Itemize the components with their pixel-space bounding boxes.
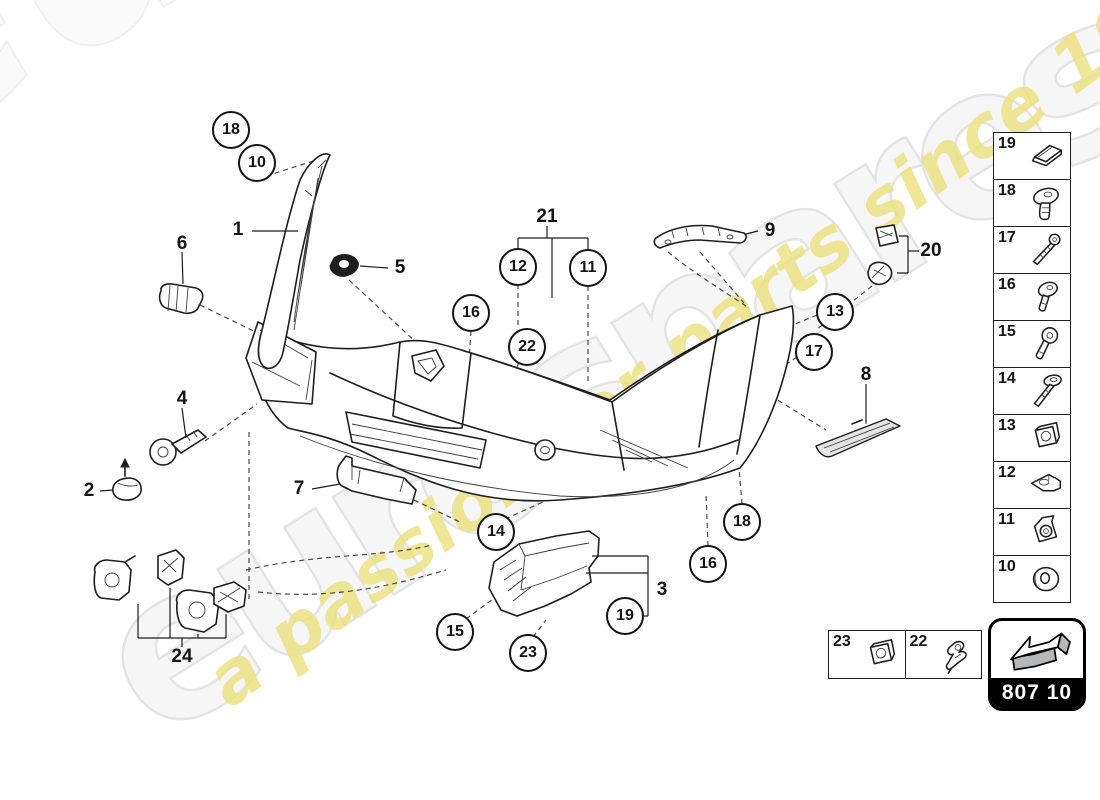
dome-head-rivet-icon [1023,183,1069,225]
part-number: 15 [998,323,1016,341]
long-screw-icon [1023,230,1069,272]
callout-label-8[interactable]: 8 [861,364,872,386]
cage-nut-icon [858,635,904,677]
page-code: 807 10 [1002,681,1072,705]
part-number: 23 [833,633,851,651]
flat-clip-icon [1023,465,1069,507]
callout-label-6[interactable]: 6 [177,233,188,255]
callout-label-9[interactable]: 9 [765,220,776,242]
callout-circle-18[interactable]: 18 [723,503,761,541]
part-number: 11 [998,511,1015,529]
callout-label-3[interactable]: 3 [657,579,668,601]
callout-label-5[interactable]: 5 [395,257,406,279]
sidebar-part-cell-10[interactable]: 10 [994,556,1070,602]
part-number: 14 [998,370,1016,388]
sidebar-part-cell-16[interactable]: 16 [994,274,1070,321]
callout-circle-10[interactable]: 10 [238,144,276,182]
callout-circle-17[interactable]: 17 [795,333,833,371]
part-number: 17 [998,229,1016,247]
callout-label-21[interactable]: 21 [536,206,557,228]
callout-circle-15[interactable]: 15 [436,613,474,651]
callout-circle-12[interactable]: 12 [499,248,537,286]
part-number: 16 [998,276,1016,294]
cage-nut-icon [1023,418,1069,460]
callout-label-1[interactable]: 1 [233,219,244,241]
callout-circle-13[interactable]: 13 [816,293,854,331]
callout-circle-16[interactable]: 16 [689,545,727,583]
callout-label-7[interactable]: 7 [294,478,305,500]
callout-circle-11[interactable]: 11 [569,249,607,287]
callout-circle-19[interactable]: 19 [606,597,644,635]
callout-layer: 1810121116221317141816191523165219208427… [0,0,1100,800]
part-number: 18 [998,182,1016,200]
extra-hardware-box: 23 22 [828,630,982,679]
part-number: 22 [910,633,928,651]
callout-circle-14[interactable]: 14 [477,513,515,551]
callout-label-20[interactable]: 20 [920,240,941,262]
shim-plate-icon [1023,136,1069,178]
grommet-washer-icon [1023,559,1069,601]
bottom-part-cell-23[interactable]: 23 [829,631,906,678]
washer-head-screw-icon [1023,371,1069,413]
sidebar-part-cell-15[interactable]: 15 [994,321,1070,368]
sidebar-part-cell-14[interactable]: 14 [994,368,1070,415]
part-number: 12 [998,464,1016,482]
page-code-badge: 807 10 [988,618,1086,711]
callout-label-24[interactable]: 24 [171,646,192,668]
bottom-part-cell-22[interactable]: 22 [906,631,982,678]
callout-circle-23[interactable]: 23 [509,634,547,672]
sidebar-part-cell-18[interactable]: 18 [994,180,1070,227]
callout-circle-18[interactable]: 18 [212,111,250,149]
pan-head-screw-icon [1023,324,1069,366]
part-number: 19 [998,135,1016,153]
part-number: 10 [998,558,1016,576]
callout-label-2[interactable]: 2 [84,480,95,502]
clip-nut-icon [1023,512,1069,554]
sidebar-part-cell-19[interactable]: 19 [994,133,1070,180]
parts-diagram-page: eurospares eurospares a passion for part… [0,0,1100,800]
sidebar-part-cell-17[interactable]: 17 [994,227,1070,274]
callout-circle-22[interactable]: 22 [508,328,546,366]
sidebar-part-cell-13[interactable]: 13 [994,415,1070,462]
callout-label-4[interactable]: 4 [177,388,188,410]
sidebar-part-cell-11[interactable]: 11 [994,509,1070,556]
direction-arrow-icon [991,621,1083,675]
part-number: 13 [998,417,1016,435]
sidebar-part-cell-12[interactable]: 12 [994,462,1070,509]
oval-head-screw-icon [1023,277,1069,319]
page-code-bar: 807 10 [991,678,1083,708]
callout-circle-16[interactable]: 16 [452,294,490,332]
sensor-bracket-icon [934,635,980,677]
hardware-column: 19 18 17 16 [993,132,1071,603]
